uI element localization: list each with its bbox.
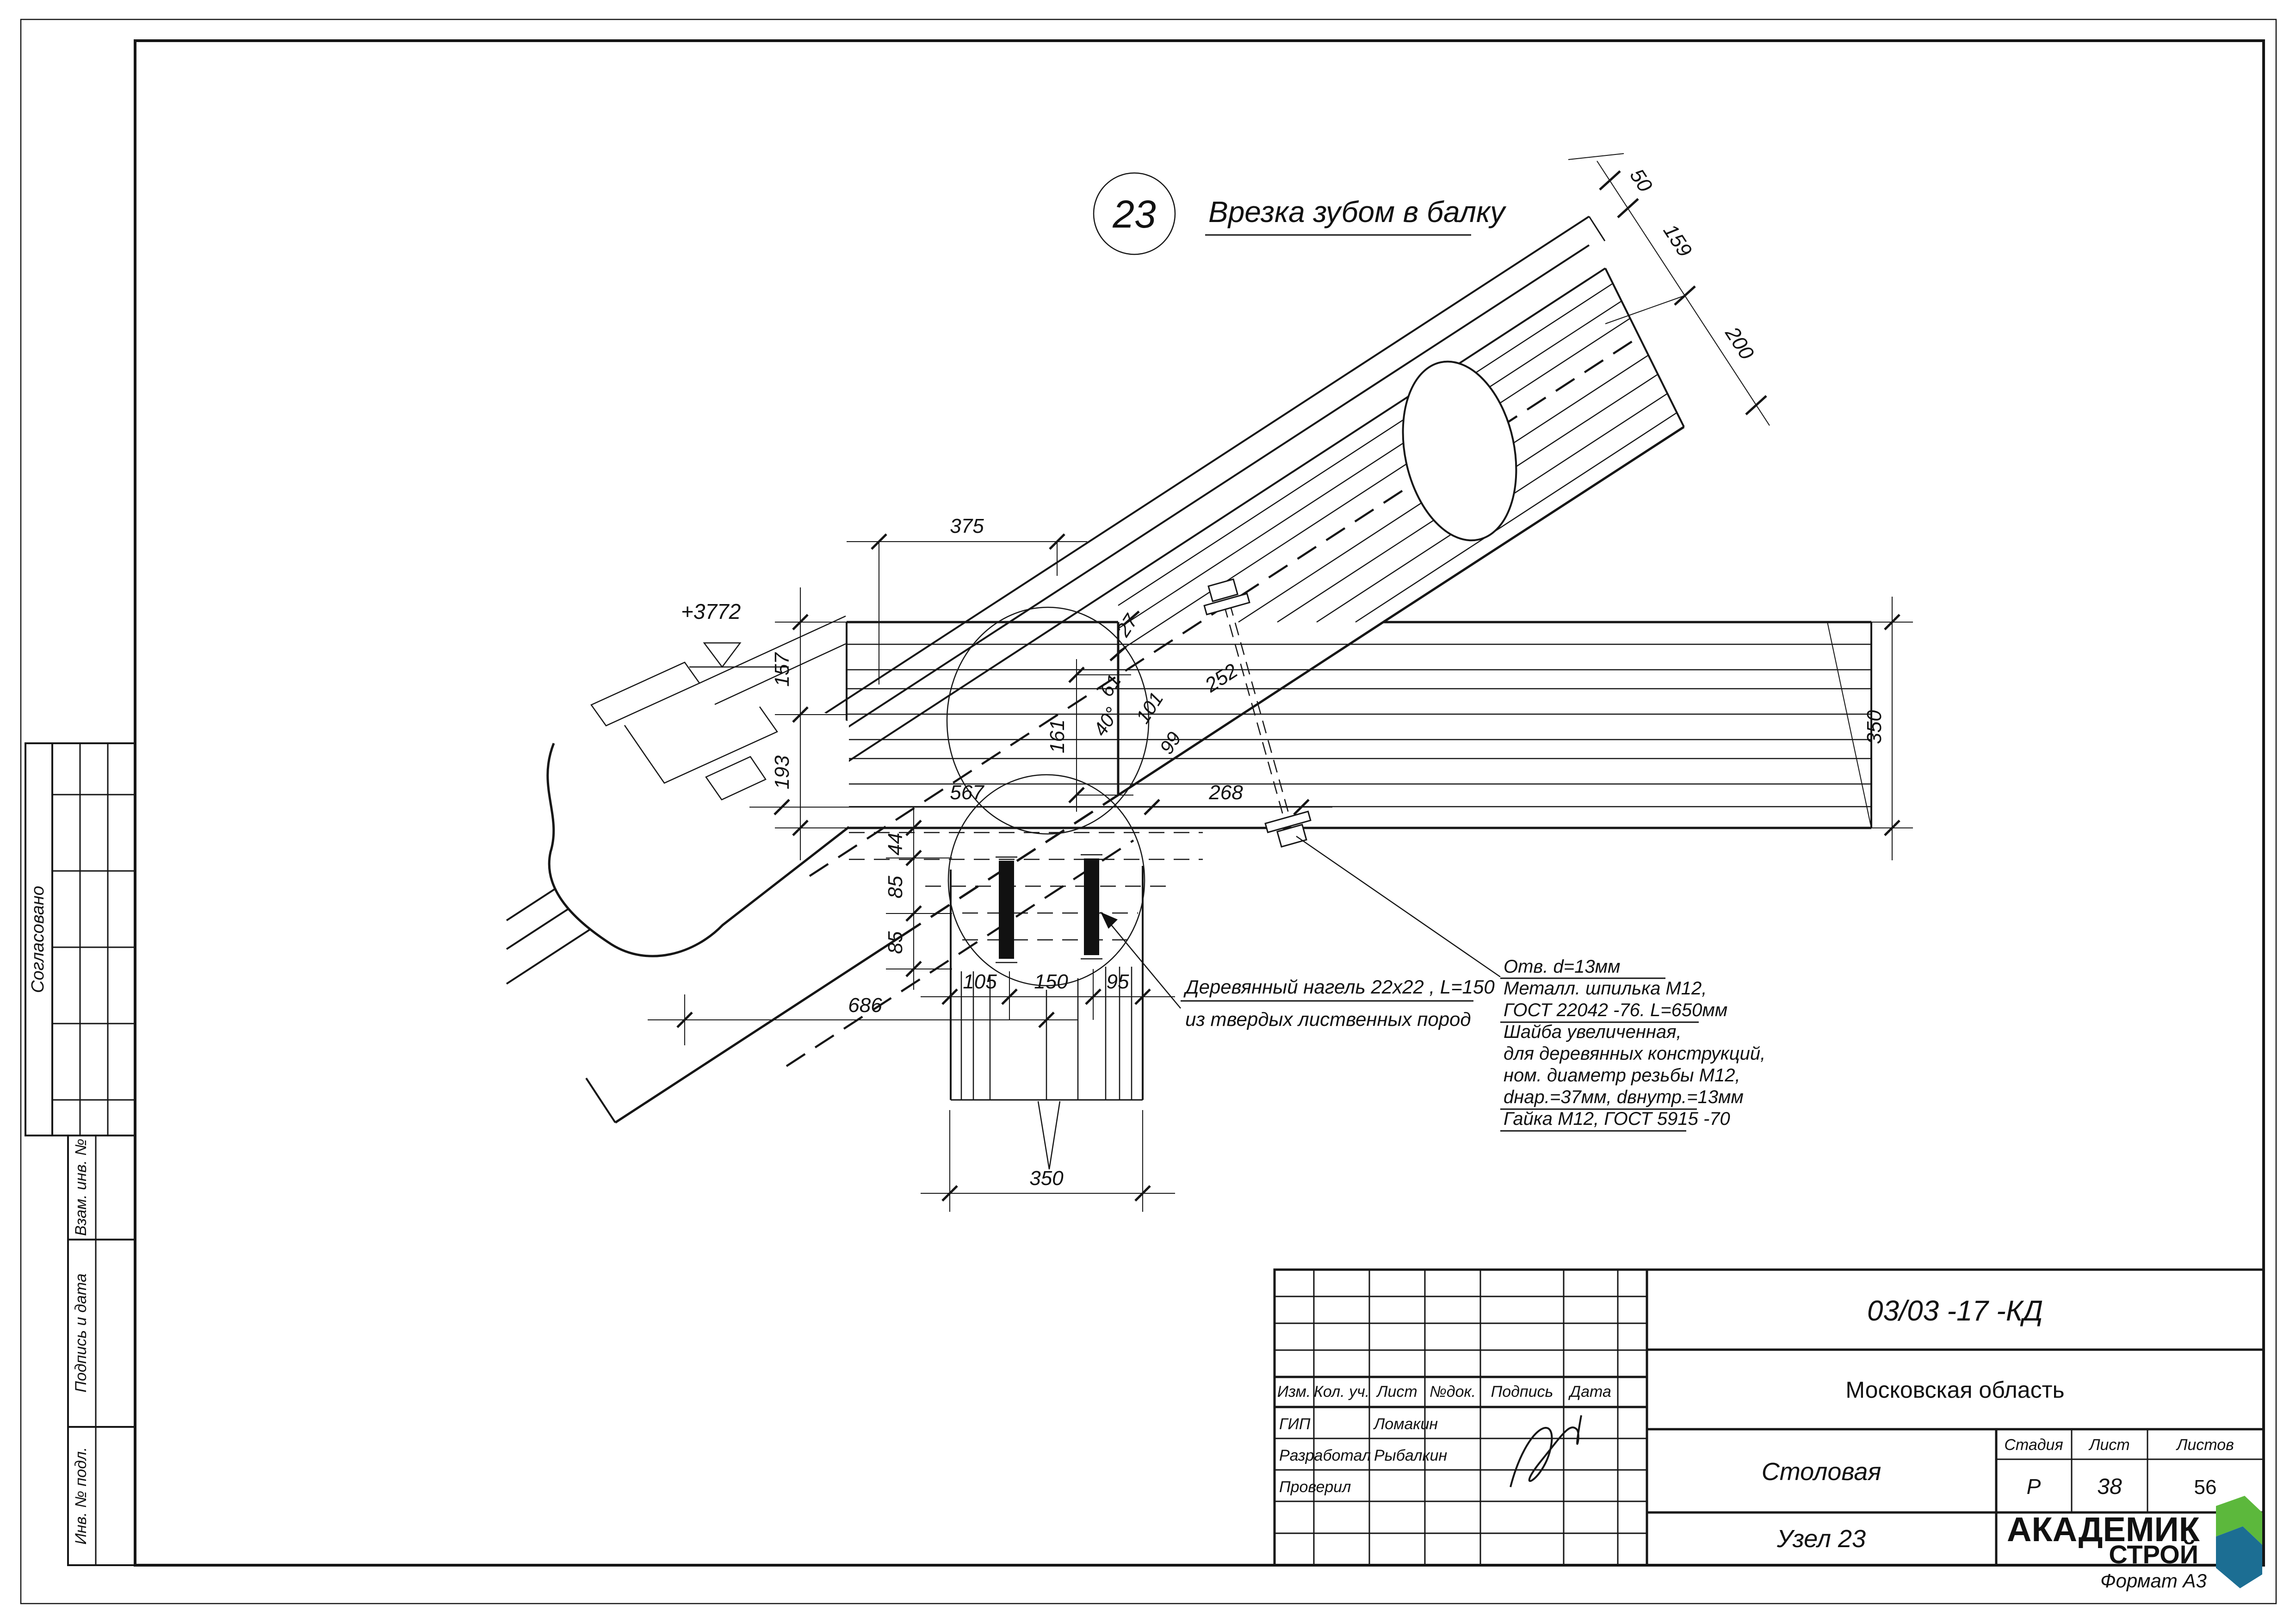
name-gip: Ломакин <box>1373 1415 1438 1433</box>
stud-assembly <box>1200 577 1315 849</box>
dim-157: 157 <box>771 652 793 687</box>
drawing-canvas: Согласовано Взам. инв. № Подпись и дата … <box>0 0 2296 1623</box>
beam <box>847 622 1871 828</box>
dim-686: 686 <box>848 994 882 1017</box>
dim-101: 101 <box>1132 688 1168 727</box>
dowel-2 <box>1084 858 1099 955</box>
dim-567: 567 <box>950 781 984 804</box>
vzam-label: Взам. инв. № <box>72 1139 90 1236</box>
sheets-value: 56 <box>2194 1476 2217 1499</box>
dim-193: 193 <box>771 755 793 790</box>
dim-200: 200 <box>1720 322 1758 364</box>
rafter-end-cut <box>1605 268 1684 427</box>
dim-350-bottom: 350 <box>1029 1167 1064 1190</box>
dim-95: 95 <box>1107 970 1129 993</box>
stud-note-3: Шайба увеличенная, <box>1504 1022 1682 1042</box>
role-dev: Разработал <box>1279 1447 1371 1464</box>
annotations: Деревянный нагель 22х22 , L=150 из тверд… <box>1101 836 1765 1131</box>
role-gip: ГИП <box>1279 1415 1311 1433</box>
sheet-title: Узел 23 <box>1776 1525 1866 1553</box>
col-date: Дата <box>1568 1383 1611 1401</box>
top-washer <box>1200 577 1250 615</box>
title-block: Изм. Кол. уч. Лист №док. Подпись Дата ГИ… <box>1275 1270 2264 1588</box>
post-break <box>1038 1101 1060 1169</box>
stud-note-7: Гайка М12, ГОСТ 5915 -70 <box>1504 1109 1730 1129</box>
dim-161: 161 <box>1046 719 1069 753</box>
dim-375: 375 <box>950 515 984 537</box>
dowel-1 <box>999 861 1014 959</box>
col-izm: Изм. <box>1277 1383 1311 1401</box>
node-caption: Врезка зубом в балку <box>1208 195 1507 228</box>
node-number: 23 <box>1112 192 1156 236</box>
dim-27: 27 <box>1112 610 1142 641</box>
dim-159: 159 <box>1659 220 1696 261</box>
doc-number: 03/03 -17 -КД <box>1867 1295 2043 1327</box>
lower-hidden-line <box>786 840 1133 1066</box>
dim-350-right: 350 <box>1863 710 1886 744</box>
dim-105: 105 <box>963 970 997 993</box>
node-title: 23 Врезка зубом в балку <box>1094 173 1507 254</box>
stud-note-5: ном. диаметр резьбы М12, <box>1504 1065 1740 1086</box>
role-check: Проверил <box>1279 1478 1351 1496</box>
stud-note-0: Отв. d=13мм <box>1504 957 1620 977</box>
drawing-sheet: Согласовано Взам. инв. № Подпись и дата … <box>0 0 2296 1623</box>
dowel-note-line1: Деревянный нагель 22х22 , L=150 <box>1183 976 1495 998</box>
signature <box>1510 1415 1581 1487</box>
stud-note-6: dнар.=37мм, dвнутр.=13мм <box>1504 1087 1744 1107</box>
dim-85b: 85 <box>884 931 907 954</box>
sheet-label: Лист <box>2088 1436 2130 1454</box>
format-label: Формат А3 <box>2100 1570 2207 1592</box>
stud-note-2: ГОСТ 22042 -76. L=650мм <box>1504 1000 1727 1020</box>
inv-label: Инв. № подл. <box>72 1447 90 1545</box>
dim-150: 150 <box>1034 970 1068 993</box>
project-name: Московская область <box>1845 1377 2064 1403</box>
name-dev: Рыбалкин <box>1374 1447 1447 1464</box>
dim-44: 44 <box>884 833 907 856</box>
dim-252: 252 <box>1201 659 1242 697</box>
col-doc: №док. <box>1430 1383 1476 1401</box>
col-list: Лист <box>1376 1383 1417 1401</box>
stud-note-4: для деревянных конструкций, <box>1504 1043 1765 1064</box>
stud-note-1: Металл. шпилька М12, <box>1504 978 1707 999</box>
stage-value: Р <box>2027 1475 2041 1499</box>
board-end-cap <box>1589 216 1605 241</box>
dim-268: 268 <box>1208 781 1243 804</box>
sheet-value: 38 <box>2097 1475 2122 1499</box>
leader-arrow <box>1101 912 1118 929</box>
left-margin-stamps: Согласовано Взам. инв. № Подпись и дата … <box>25 743 135 1565</box>
dowel-note-line2: из твердых лиственных пород <box>1185 1008 1471 1030</box>
logo-line2: СТРОЙ <box>2109 1540 2198 1569</box>
dim-50: 50 <box>1625 165 1657 196</box>
approved-label: Согласовано <box>28 886 48 993</box>
podpis-data-label: Подпись и дата <box>72 1273 90 1392</box>
rafter-tip-cap <box>586 1078 615 1123</box>
sheets-label: Листов <box>2176 1436 2234 1454</box>
elevation-value: +3772 <box>681 599 741 623</box>
col-kol: Кол. уч. <box>1314 1383 1369 1401</box>
stage-label: Стадия <box>2004 1436 2063 1454</box>
object-name: Столовая <box>1762 1458 1881 1486</box>
col-sign: Подпись <box>1491 1383 1553 1401</box>
dim-85a: 85 <box>884 876 907 898</box>
